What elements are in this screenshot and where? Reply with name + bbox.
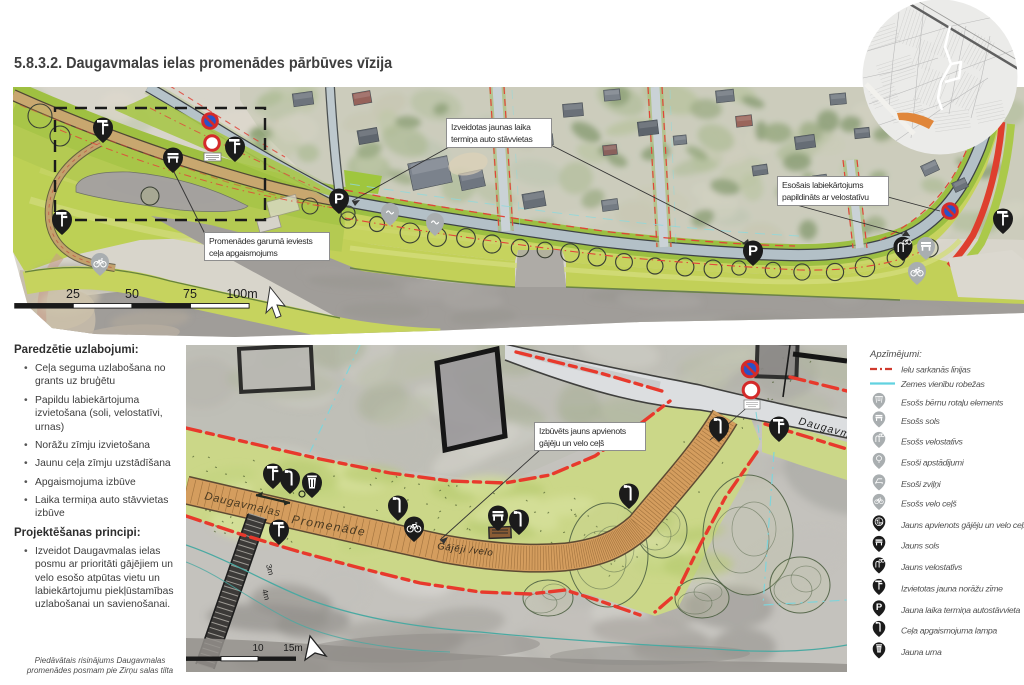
svg-text:50: 50: [125, 287, 139, 301]
svg-text:P: P: [876, 602, 882, 613]
svg-text:Esoši zviļņi: Esoši zviļņi: [901, 479, 942, 489]
svg-text:Apzīmējumi:: Apzīmējumi:: [869, 349, 922, 360]
svg-text:25: 25: [66, 287, 80, 301]
svg-text:100m: 100m: [226, 287, 257, 301]
svg-text:P: P: [748, 243, 758, 260]
svg-text:Esošs sols: Esošs sols: [901, 416, 940, 426]
svg-text:Esoši apstādījumi: Esoši apstādījumi: [901, 458, 965, 468]
svg-text:Jauna laika termiņa autostāvvi: Jauna laika termiņa autostāvvieta: [900, 605, 1021, 615]
svg-text:Jauns velostatīvs: Jauns velostatīvs: [900, 562, 963, 572]
svg-text:Esošs bērnu rotaļu elements: Esošs bērnu rotaļu elements: [901, 398, 1004, 408]
svg-text:Jauns sols: Jauns sols: [900, 541, 940, 551]
svg-text:Jauna urna: Jauna urna: [900, 647, 942, 657]
svg-text:Ielu sarkanās līnijas: Ielu sarkanās līnijas: [901, 365, 971, 375]
svg-text:75: 75: [183, 287, 197, 301]
svg-text:15m: 15m: [283, 643, 302, 654]
svg-text:Esošs velo ceļš: Esošs velo ceļš: [901, 499, 957, 509]
svg-text:10: 10: [252, 643, 264, 654]
svg-text:Esošs velostatīvs: Esošs velostatīvs: [901, 437, 963, 447]
svg-text:Izvietotas jauna norāžu zīme: Izvietotas jauna norāžu zīme: [901, 584, 1003, 594]
svg-text:Jauns apvienots gājēju un velo: Jauns apvienots gājēju un velo ceļš: [900, 520, 1024, 530]
svg-text:Ceļa apgaismojuma lampa: Ceļa apgaismojuma lampa: [901, 626, 997, 636]
svg-text:Zemes vienību robežas: Zemes vienību robežas: [900, 379, 985, 389]
svg-text:P: P: [334, 191, 344, 208]
